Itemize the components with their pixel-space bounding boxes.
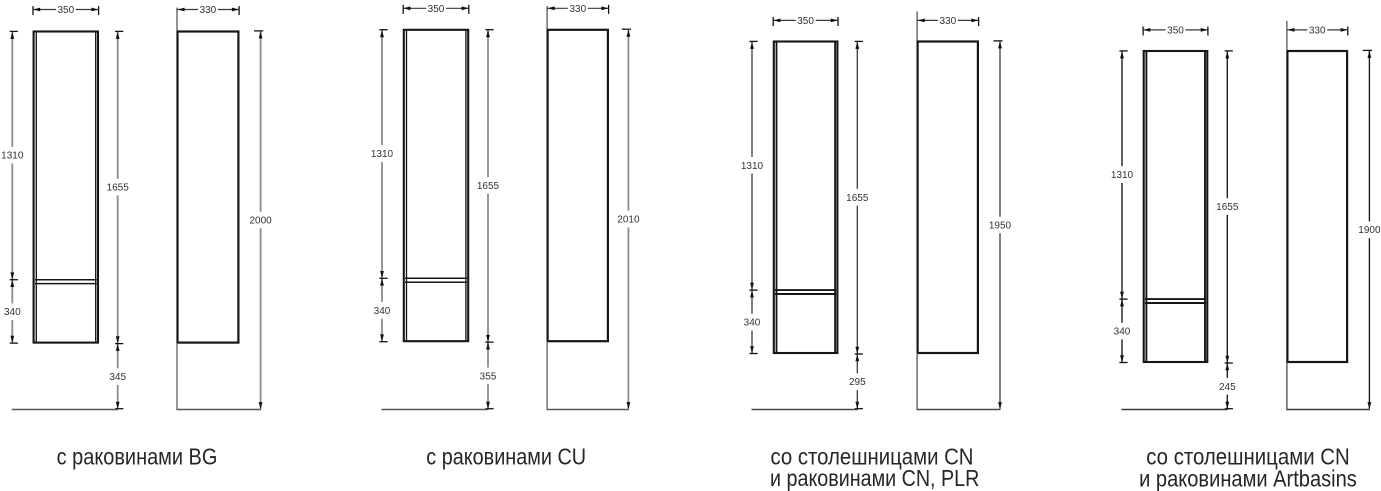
svg-text:350: 350 <box>57 5 74 16</box>
svg-text:1950: 1950 <box>989 221 1012 232</box>
svg-text:340: 340 <box>4 307 21 318</box>
svg-text:1900: 1900 <box>1358 225 1381 236</box>
svg-text:1655: 1655 <box>846 193 869 204</box>
svg-text:330: 330 <box>200 5 217 16</box>
svg-text:340: 340 <box>1114 327 1131 338</box>
svg-text:245: 245 <box>1219 382 1236 393</box>
svg-text:1655: 1655 <box>1216 202 1239 213</box>
svg-text:с раковинами BG: с раковинами BG <box>57 444 218 470</box>
svg-text:1655: 1655 <box>107 183 130 194</box>
svg-text:330: 330 <box>1309 25 1326 36</box>
svg-text:340: 340 <box>744 318 761 329</box>
svg-text:и раковинами CN, PLR: и раковинами CN, PLR <box>770 465 979 491</box>
svg-text:2000: 2000 <box>249 216 272 227</box>
svg-text:330: 330 <box>569 4 586 15</box>
svg-text:и раковинами Artbasins: и раковинами Artbasins <box>1139 466 1357 491</box>
svg-text:350: 350 <box>797 16 814 27</box>
svg-text:2010: 2010 <box>617 215 640 226</box>
svg-text:1655: 1655 <box>477 181 500 192</box>
svg-text:1310: 1310 <box>741 161 764 172</box>
svg-text:355: 355 <box>480 371 497 382</box>
svg-text:345: 345 <box>109 372 126 383</box>
svg-text:1310: 1310 <box>1 151 24 162</box>
svg-text:295: 295 <box>849 377 866 388</box>
svg-text:350: 350 <box>428 4 445 15</box>
svg-text:340: 340 <box>374 306 391 317</box>
svg-text:330: 330 <box>939 16 956 27</box>
svg-text:с раковинами CU: с раковинами CU <box>426 444 586 470</box>
svg-text:1310: 1310 <box>1111 170 1134 181</box>
svg-text:1310: 1310 <box>371 149 394 160</box>
svg-text:350: 350 <box>1167 25 1184 36</box>
